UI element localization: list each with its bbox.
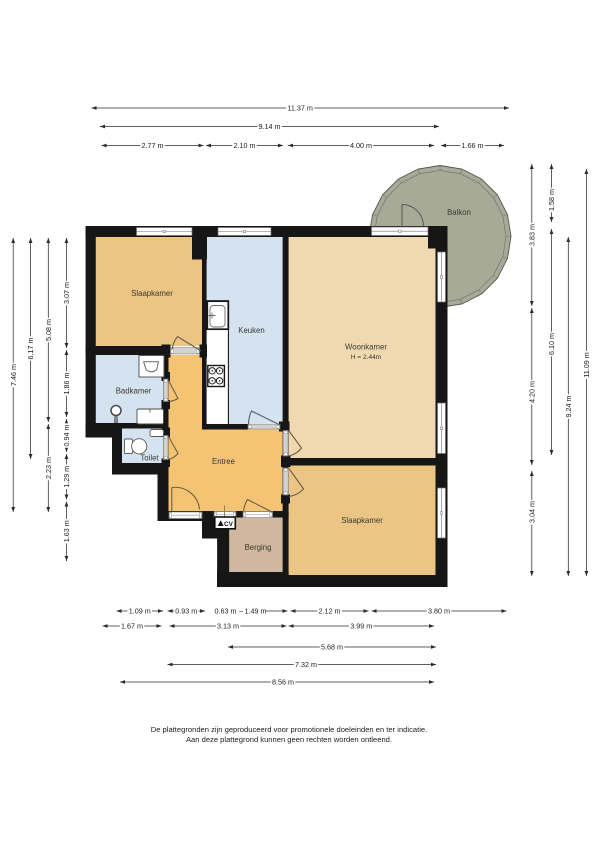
- svg-text:6.10 m: 6.10 m: [547, 333, 556, 355]
- svg-text:Berging: Berging: [245, 543, 272, 552]
- svg-text:1.29 m: 1.29 m: [62, 466, 71, 488]
- svg-text:9.24 m: 9.24 m: [564, 396, 573, 418]
- svg-text:2.23 m: 2.23 m: [44, 457, 53, 479]
- svg-text:3.99 m: 3.99 m: [350, 622, 372, 631]
- svg-text:Entree: Entree: [212, 457, 235, 466]
- svg-text:H = 2.44m: H = 2.44m: [351, 354, 382, 361]
- svg-text:Badkamer: Badkamer: [116, 387, 152, 396]
- svg-text:1.63 m: 1.63 m: [62, 520, 71, 542]
- svg-text:0.93 m: 0.93 m: [175, 607, 197, 616]
- svg-text:CV: CV: [224, 521, 234, 528]
- svg-text:8.56 m: 8.56 m: [272, 678, 294, 687]
- svg-text:Keuken: Keuken: [238, 326, 264, 335]
- svg-text:5.08 m: 5.08 m: [44, 319, 53, 341]
- svg-text:2.12 m: 2.12 m: [319, 607, 341, 616]
- svg-text:4.20 m: 4.20 m: [527, 381, 536, 403]
- svg-text:Balkon: Balkon: [447, 208, 471, 217]
- svg-text:1.09 m: 1.09 m: [129, 607, 151, 616]
- svg-text:1.86 m: 1.86 m: [62, 373, 71, 395]
- svg-text:11.37 m: 11.37 m: [287, 104, 312, 113]
- svg-text:3.83 m: 3.83 m: [527, 224, 536, 246]
- svg-text:1.67 m: 1.67 m: [121, 622, 143, 631]
- svg-text:5.68 m: 5.68 m: [321, 643, 343, 652]
- svg-text:3.04 m: 3.04 m: [527, 501, 536, 523]
- svg-text:2.10 m: 2.10 m: [234, 141, 256, 150]
- svg-text:7.46 m: 7.46 m: [9, 364, 18, 386]
- svg-text:Slaapkamer: Slaapkamer: [341, 516, 383, 525]
- svg-text:6.17 m: 6.17 m: [26, 338, 35, 360]
- svg-text:0.63 m: 0.63 m: [215, 607, 237, 616]
- svg-text:Woonkamer: Woonkamer: [345, 343, 387, 352]
- svg-text:2.77 m: 2.77 m: [142, 141, 164, 150]
- svg-text:0.94 m: 0.94 m: [62, 425, 71, 447]
- svg-text:1.58 m: 1.58 m: [547, 189, 556, 211]
- svg-text:1.49 m: 1.49 m: [245, 607, 267, 616]
- svg-text:3.13 m: 3.13 m: [217, 622, 239, 631]
- svg-text:11.09 m: 11.09 m: [582, 352, 591, 377]
- svg-text:9.14 m: 9.14 m: [259, 122, 281, 131]
- svg-text:De plattegronden zijn geproduc: De plattegronden zijn geproduceerd voor …: [151, 725, 428, 734]
- svg-text:Aan deze plattegrond kunnen ge: Aan deze plattegrond kunnen geen rechten…: [186, 735, 392, 744]
- svg-text:Toilet: Toilet: [140, 454, 159, 463]
- svg-text:3.80 m: 3.80 m: [428, 607, 450, 616]
- svg-text:4.00 m: 4.00 m: [350, 141, 372, 150]
- svg-text:1.66 m: 1.66 m: [462, 141, 484, 150]
- svg-text:Slaapkamer: Slaapkamer: [131, 289, 173, 298]
- svg-text:–: –: [239, 607, 243, 616]
- svg-text:3.07 m: 3.07 m: [62, 282, 71, 304]
- svg-text:7.32 m: 7.32 m: [295, 660, 317, 669]
